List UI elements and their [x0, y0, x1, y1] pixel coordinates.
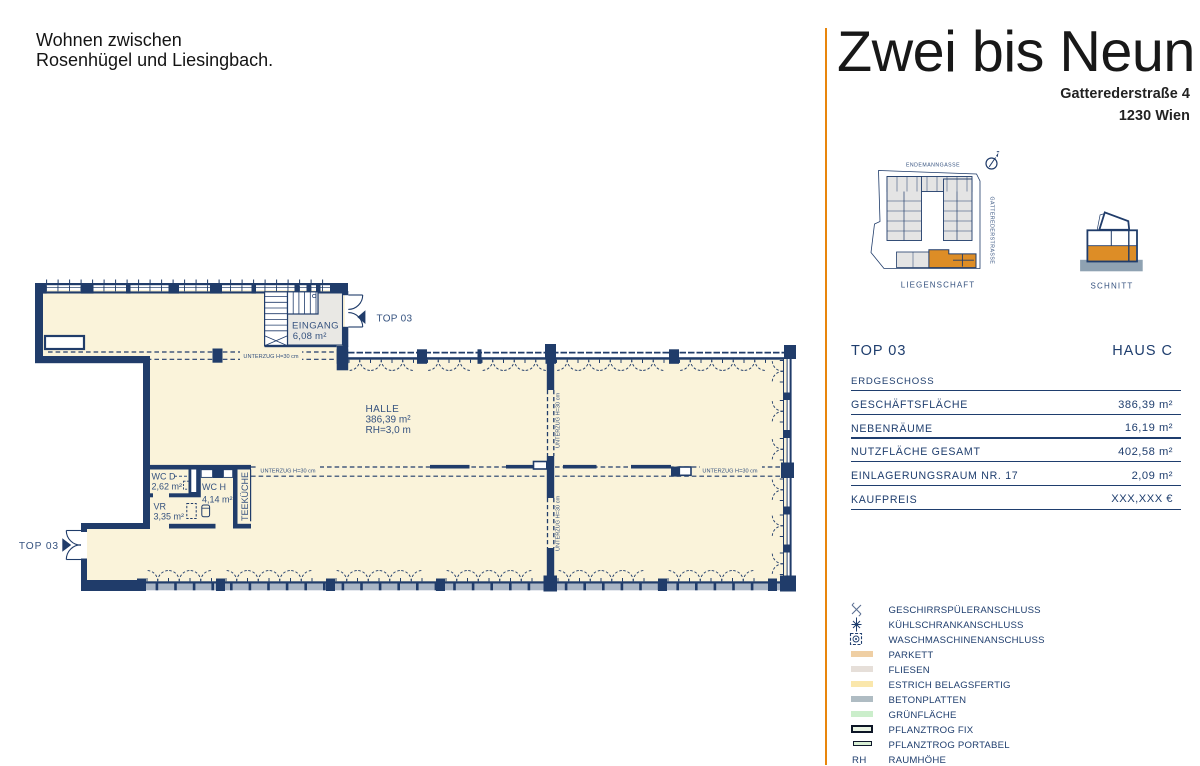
- svg-text:386,39 m²: 386,39 m²: [366, 414, 412, 425]
- svg-text:UNTERZUG H=30 cm: UNTERZUG H=30 cm: [243, 354, 299, 360]
- svg-text:RH=3,0 m: RH=3,0 m: [366, 425, 411, 436]
- svg-text:3,35 m²: 3,35 m²: [154, 512, 185, 522]
- svg-text:6,08 m²: 6,08 m²: [293, 331, 328, 342]
- svg-text:HALLE: HALLE: [366, 404, 400, 415]
- svg-text:UNTERZUG H=30 cm: UNTERZUG H=30 cm: [702, 469, 758, 475]
- svg-text:UNTERZUG H=30 cm: UNTERZUG H=30 cm: [556, 495, 562, 551]
- svg-text:UNTERZUG H=30 cm: UNTERZUG H=30 cm: [260, 469, 316, 475]
- svg-text:WC H: WC H: [202, 482, 226, 492]
- svg-text:2,62 m²: 2,62 m²: [152, 482, 183, 492]
- svg-text:VR: VR: [154, 501, 167, 511]
- svg-text:ENDEMANNGASSE: ENDEMANNGASSE: [906, 162, 960, 168]
- svg-text:TEEKÜCHE: TEEKÜCHE: [240, 472, 250, 521]
- svg-text:TOP 03: TOP 03: [377, 313, 413, 324]
- svg-text:SCHNITT: SCHNITT: [1090, 282, 1133, 291]
- svg-text:UNTERZUG H=30 cm: UNTERZUG H=30 cm: [556, 392, 562, 448]
- svg-text:WC D: WC D: [152, 471, 176, 481]
- svg-text:LIEGENSCHAFT: LIEGENSCHAFT: [901, 281, 976, 290]
- svg-text:GATTEREDERSTRASSE: GATTEREDERSTRASSE: [989, 197, 995, 265]
- svg-text:4,14 m²: 4,14 m²: [202, 494, 233, 504]
- svg-text:EINGANG: EINGANG: [292, 320, 339, 331]
- svg-text:TOP 03: TOP 03: [19, 541, 59, 552]
